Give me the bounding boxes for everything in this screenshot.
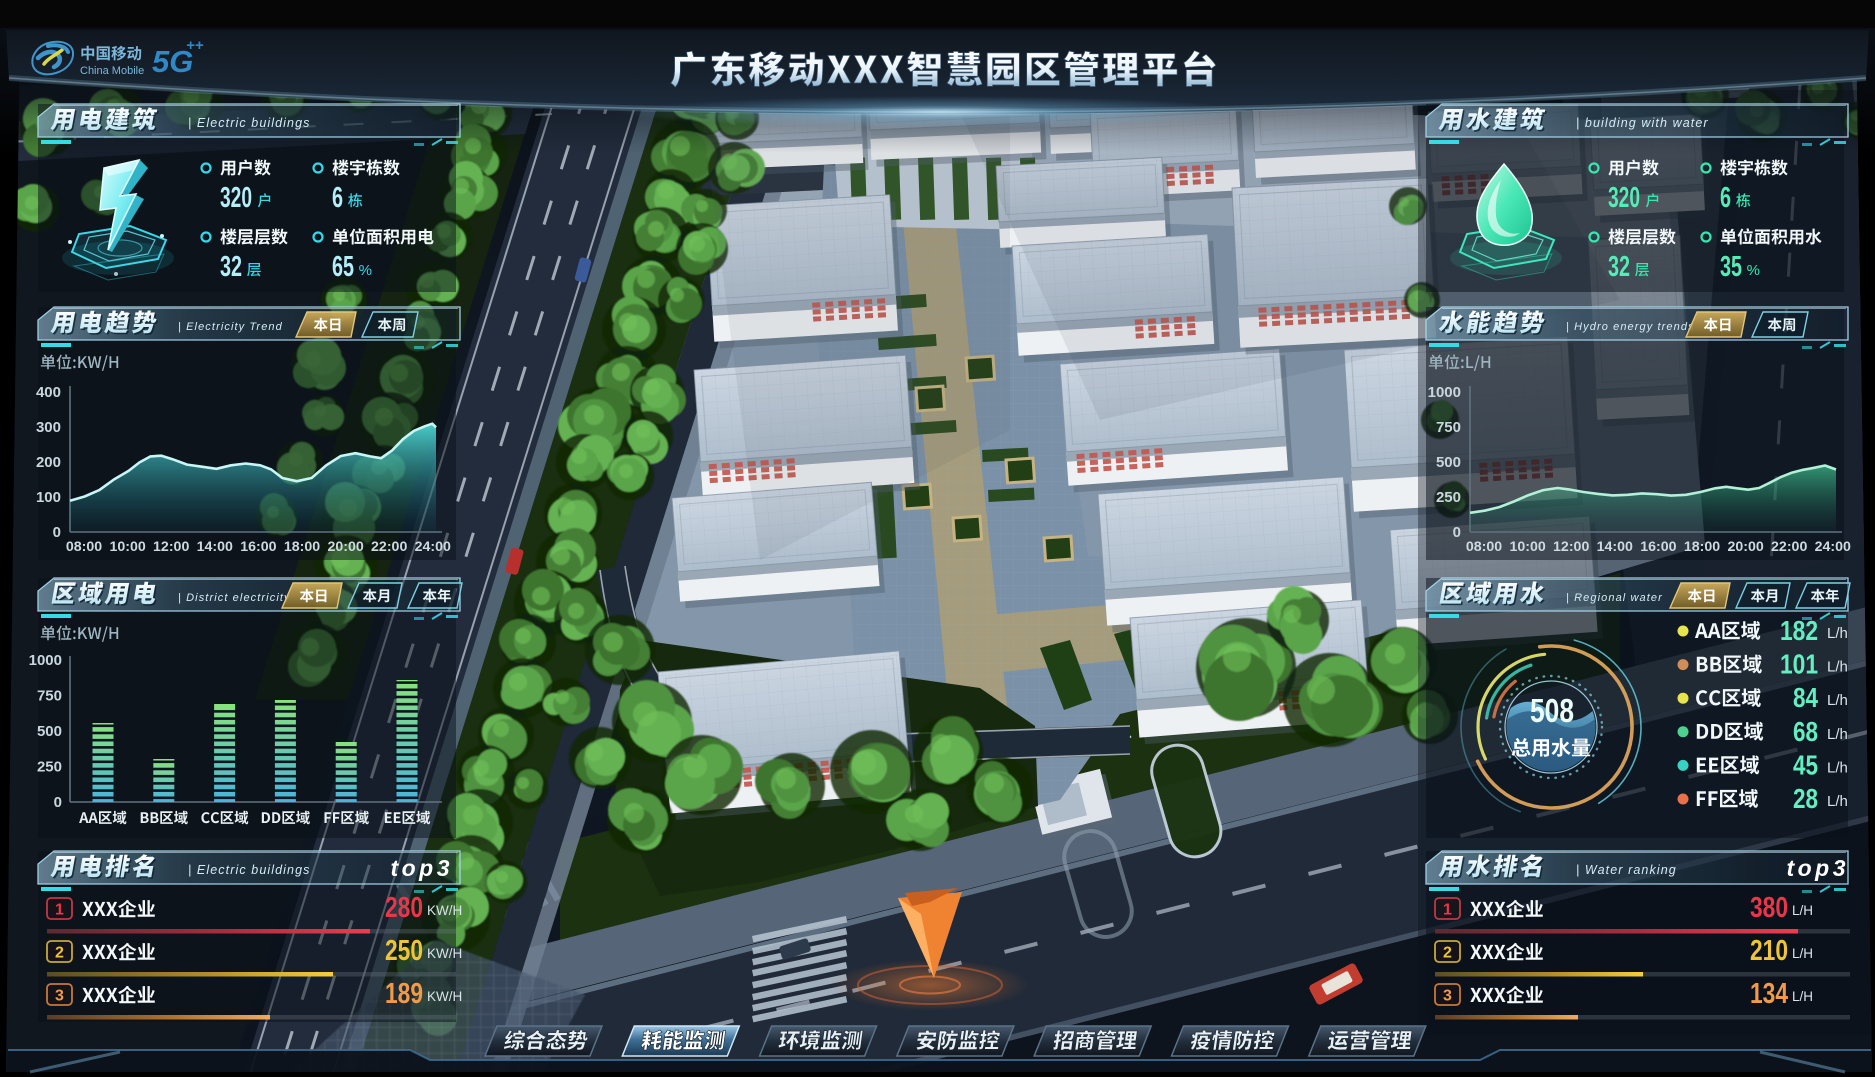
svg-text:| Water ranking: | Water ranking xyxy=(1576,863,1677,877)
svg-text:L/H: L/H xyxy=(1792,946,1813,961)
svg-text:750: 750 xyxy=(37,688,62,705)
svg-text:KW/H: KW/H xyxy=(427,903,462,918)
svg-text:1: 1 xyxy=(55,902,64,919)
svg-text:3: 3 xyxy=(1443,988,1452,1005)
svg-text:12:00: 12:00 xyxy=(153,539,189,555)
svg-text:320: 320 xyxy=(1608,182,1640,214)
svg-text:L/H: L/H xyxy=(1792,989,1813,1004)
svg-text:| Electricity Trend: | Electricity Trend xyxy=(178,321,283,333)
svg-text:L/h: L/h xyxy=(1827,659,1848,676)
svg-text:320: 320 xyxy=(220,182,252,214)
svg-text:24:00: 24:00 xyxy=(1815,539,1851,555)
svg-text:L/h: L/h xyxy=(1827,793,1848,810)
svg-text:400: 400 xyxy=(36,384,61,401)
svg-text:250: 250 xyxy=(385,935,423,967)
svg-text:10:00: 10:00 xyxy=(109,539,145,555)
svg-text:200: 200 xyxy=(36,454,61,471)
svg-text:| Electric buildings: | Electric buildings xyxy=(188,863,311,877)
svg-text:22:00: 22:00 xyxy=(1771,539,1807,555)
svg-text:| Regional water: | Regional water xyxy=(1566,592,1663,604)
svg-text:210: 210 xyxy=(1750,935,1788,967)
svg-text:20:00: 20:00 xyxy=(327,539,363,555)
svg-text:1000: 1000 xyxy=(1428,384,1461,401)
svg-text:top3: top3 xyxy=(1786,855,1849,881)
svg-text:18:00: 18:00 xyxy=(284,539,320,555)
svg-text:L/h: L/h xyxy=(1827,759,1848,776)
svg-text:++: ++ xyxy=(186,37,204,54)
svg-text:500: 500 xyxy=(1436,454,1461,471)
svg-text:KW/H: KW/H xyxy=(427,946,462,961)
svg-text:2: 2 xyxy=(1443,945,1452,962)
svg-text:16:00: 16:00 xyxy=(240,539,276,555)
svg-text:84: 84 xyxy=(1793,682,1818,713)
svg-text:China Mobile: China Mobile xyxy=(80,65,144,77)
svg-text:| building with water: | building with water xyxy=(1576,116,1709,130)
svg-text:134: 134 xyxy=(1750,978,1788,1010)
svg-text:32: 32 xyxy=(220,251,242,283)
svg-text:380: 380 xyxy=(1750,892,1788,924)
svg-text:182: 182 xyxy=(1780,615,1818,646)
svg-text:6: 6 xyxy=(1720,182,1731,214)
svg-text:3: 3 xyxy=(55,988,64,1005)
svg-text:1000: 1000 xyxy=(29,652,62,669)
svg-text:68: 68 xyxy=(1793,716,1818,747)
svg-text:0: 0 xyxy=(1453,524,1461,541)
svg-text:| Hydro energy trends: | Hydro energy trends xyxy=(1566,321,1695,333)
svg-text:14:00: 14:00 xyxy=(1597,539,1633,555)
svg-text:24:00: 24:00 xyxy=(415,539,451,555)
svg-text:top3: top3 xyxy=(390,855,453,881)
svg-text:1: 1 xyxy=(1443,902,1452,919)
svg-text:22:00: 22:00 xyxy=(371,539,407,555)
svg-text:16:00: 16:00 xyxy=(1640,539,1676,555)
svg-text:65: 65 xyxy=(332,251,354,283)
svg-text:12:00: 12:00 xyxy=(1553,539,1589,555)
svg-text:28: 28 xyxy=(1793,783,1818,814)
svg-text:14:00: 14:00 xyxy=(197,539,233,555)
svg-text:0: 0 xyxy=(53,524,61,541)
svg-text:45: 45 xyxy=(1793,749,1818,780)
svg-text:| Electric buildings: | Electric buildings xyxy=(188,116,311,130)
svg-text:250: 250 xyxy=(37,759,62,776)
svg-text:2: 2 xyxy=(55,945,64,962)
svg-text:189: 189 xyxy=(385,978,423,1010)
svg-text:L/H: L/H xyxy=(1792,903,1813,918)
svg-text:100: 100 xyxy=(36,489,61,506)
svg-text:101: 101 xyxy=(1780,649,1818,680)
svg-text:500: 500 xyxy=(37,723,62,740)
svg-text:250: 250 xyxy=(1436,489,1461,506)
svg-text:18:00: 18:00 xyxy=(1684,539,1720,555)
svg-text:L/h: L/h xyxy=(1827,692,1848,709)
svg-text:| District electricity: | District electricity xyxy=(178,592,291,604)
svg-text:35: 35 xyxy=(1720,251,1742,283)
svg-text:20:00: 20:00 xyxy=(1727,539,1763,555)
svg-text:280: 280 xyxy=(385,892,423,924)
svg-text:750: 750 xyxy=(1436,419,1461,436)
svg-text:%: % xyxy=(1747,262,1760,279)
svg-text:6: 6 xyxy=(332,182,343,214)
svg-text:KW/H: KW/H xyxy=(427,989,462,1004)
svg-text:0: 0 xyxy=(54,794,62,811)
svg-text:508: 508 xyxy=(1530,692,1574,729)
svg-text:10:00: 10:00 xyxy=(1509,539,1545,555)
svg-text:%: % xyxy=(359,262,372,279)
svg-text:L/h: L/h xyxy=(1827,726,1848,743)
svg-text:08:00: 08:00 xyxy=(1466,539,1502,555)
svg-text:300: 300 xyxy=(36,419,61,436)
svg-text:L/h: L/h xyxy=(1827,625,1848,642)
svg-text:08:00: 08:00 xyxy=(66,539,102,555)
svg-text:32: 32 xyxy=(1608,251,1630,283)
